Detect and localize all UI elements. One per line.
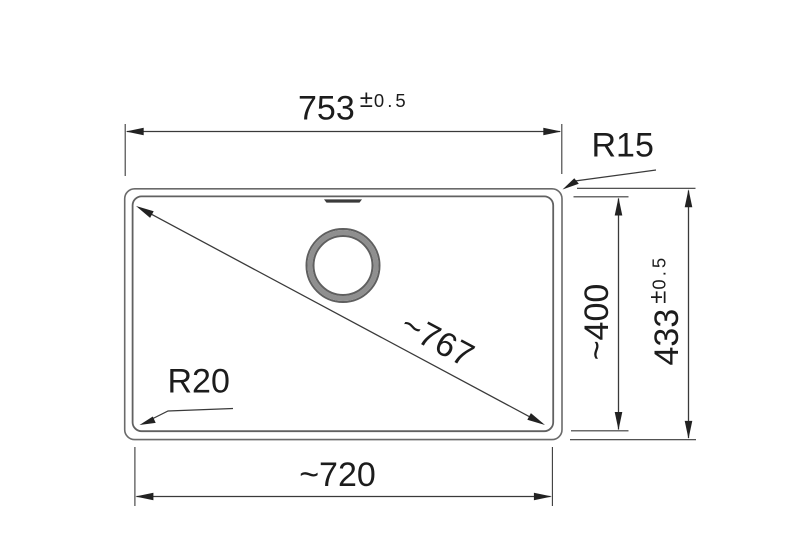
svg-text:~400: ~400 — [578, 284, 616, 361]
svg-text:~720: ~720 — [299, 456, 376, 494]
svg-text:R15: R15 — [592, 127, 654, 165]
svg-text:R20: R20 — [168, 363, 230, 401]
